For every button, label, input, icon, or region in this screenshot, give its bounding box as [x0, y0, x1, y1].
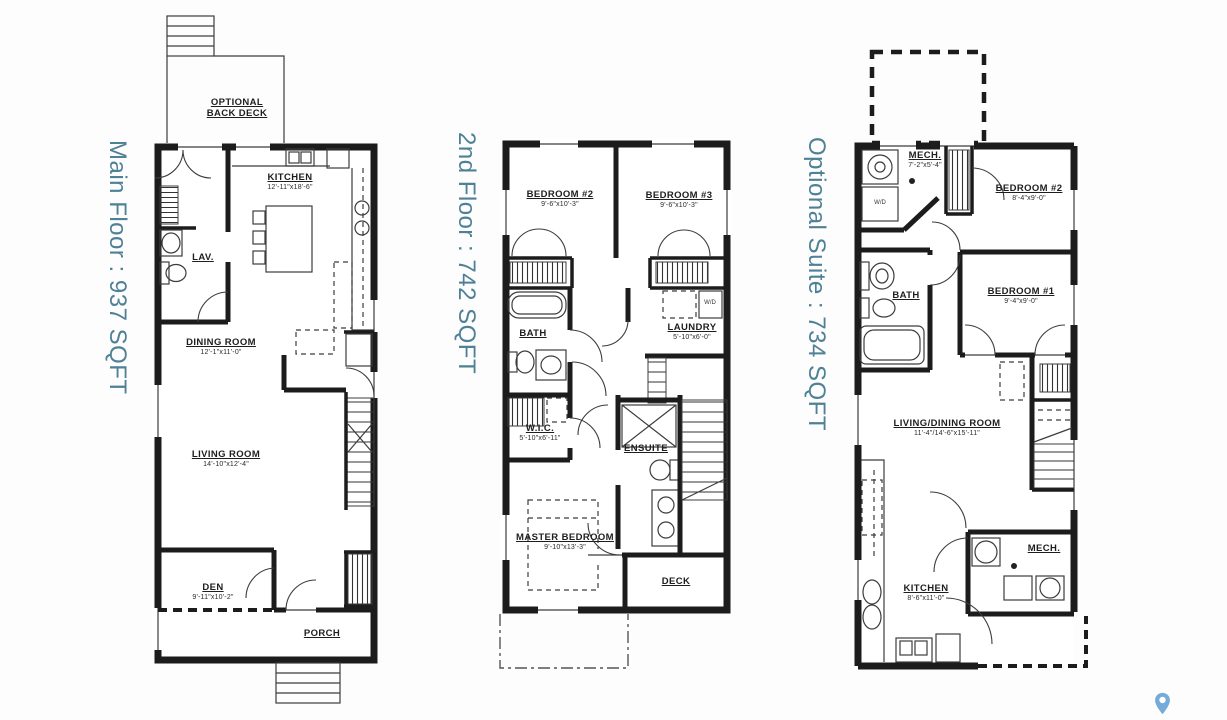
room-label-dining-room: DINING ROOM 12'-1"x11'-0" — [186, 338, 256, 357]
room-label-wic: W.I.C. 5'-10"x6'-11" — [519, 424, 560, 443]
room-label-master-bedroom: MASTER BEDROOM 9'-10"x13'-3" — [516, 533, 614, 552]
room-label-den: DEN 9'-11"x10'-2" — [192, 583, 233, 602]
back-deck-stairs — [167, 16, 284, 143]
room-label-suite-bedroom-2: BEDROOM #2 8'-4"x9'-0" — [996, 184, 1063, 203]
floor-plan-main-floor — [140, 0, 425, 715]
washer-dryer-label: W/D — [704, 300, 716, 306]
room-label-living-room: LIVING ROOM 14'-10"x12'-4" — [192, 450, 260, 469]
room-label-lav: LAV. — [192, 253, 214, 264]
room-label-suite-bedroom-1: BEDROOM #1 9'-4"x9'-0" — [988, 287, 1055, 306]
room-label-bedroom-3: BEDROOM #3 9'-6"x10'-3" — [646, 191, 713, 210]
room-label-optional-back-deck: OPTIONAL BACK DECK — [205, 98, 269, 121]
room-label-suite-kitchen: KITCHEN 8'-6"x11'-0" — [903, 584, 948, 603]
washer-dryer-label: W/D — [874, 200, 886, 206]
room-label-mech-lower: MECH. — [1028, 544, 1061, 555]
optional-deck-outline — [872, 52, 984, 143]
plan-title-main-floor: Main Floor : 937 SQFT — [103, 140, 131, 395]
location-pin-icon — [1154, 692, 1171, 715]
lower-roof-outline — [500, 614, 628, 668]
room-label-ensuite: ENSUITE — [624, 444, 668, 455]
room-label-laundry: LAUNDRY 5'-10"x6'-0" — [668, 323, 717, 342]
room-label-living-dining: LIVING/DINING ROOM 11'-4"/14'-6"x15'-11" — [894, 419, 1001, 438]
room-label-suite-bath: BATH — [892, 291, 919, 302]
floor-plans-page: Main Floor : 937 SQFT — [0, 0, 1227, 720]
room-label-deck: DECK — [662, 577, 691, 588]
room-label-kitchen: KITCHEN 12'-11"x18'-6" — [267, 173, 312, 192]
room-label-bedroom-2: BEDROOM #2 9'-6"x10'-3" — [527, 190, 594, 209]
room-label-bath: BATH — [519, 329, 546, 340]
room-label-porch: PORCH — [304, 629, 340, 640]
floor-plan-optional-suite — [800, 40, 1100, 690]
room-label-mech-upper: MECH. 7'-2"x5'-4" — [908, 151, 942, 170]
